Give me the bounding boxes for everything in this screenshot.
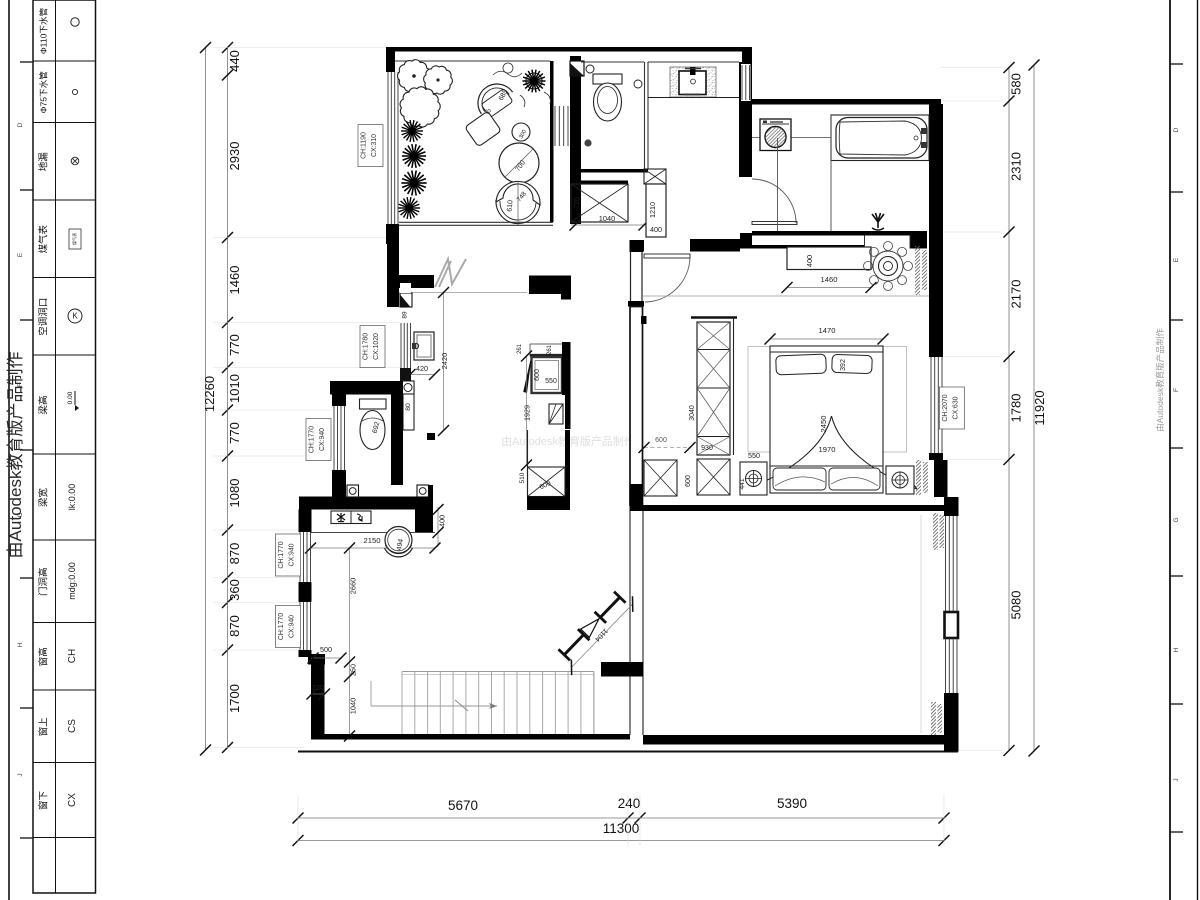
svg-text:梁宽: 梁宽 bbox=[38, 488, 50, 508]
svg-text:440: 440 bbox=[227, 50, 242, 72]
svg-text:由Autodesk教育版产品制作: 由Autodesk教育版产品制作 bbox=[6, 352, 25, 559]
svg-text:11920: 11920 bbox=[1032, 390, 1047, 425]
svg-text:240: 240 bbox=[618, 796, 641, 811]
svg-text:空调洞口: 空调洞口 bbox=[38, 298, 50, 336]
svg-text:770: 770 bbox=[227, 334, 242, 356]
svg-text:400: 400 bbox=[805, 255, 814, 267]
svg-text:CX:940: CX:940 bbox=[319, 428, 326, 451]
svg-text:梁高: 梁高 bbox=[38, 395, 50, 414]
svg-text:J: J bbox=[1173, 778, 1180, 781]
svg-text:1040: 1040 bbox=[349, 698, 358, 714]
svg-text:H: H bbox=[17, 642, 24, 647]
svg-text:E: E bbox=[17, 252, 24, 257]
svg-text:720: 720 bbox=[574, 197, 581, 209]
svg-text:K: K bbox=[72, 312, 78, 321]
svg-text:2150: 2150 bbox=[364, 536, 381, 545]
svg-text:5670: 5670 bbox=[448, 798, 478, 813]
svg-text:CX:310: CX:310 bbox=[371, 134, 378, 157]
svg-text:CH:1190: CH:1190 bbox=[361, 132, 368, 159]
svg-text:CX: CX bbox=[67, 793, 78, 807]
svg-text:870: 870 bbox=[227, 615, 242, 637]
svg-text:2450: 2450 bbox=[819, 416, 828, 433]
svg-text:H: H bbox=[1173, 647, 1180, 652]
svg-text:12260: 12260 bbox=[202, 376, 217, 412]
svg-text:1080: 1080 bbox=[227, 479, 242, 508]
svg-text:441: 441 bbox=[739, 478, 746, 489]
svg-text:1470: 1470 bbox=[819, 326, 836, 335]
svg-text:392: 392 bbox=[840, 359, 847, 371]
svg-text:360: 360 bbox=[227, 579, 242, 601]
svg-text:1929: 1929 bbox=[523, 405, 532, 421]
svg-text:mdg:0.00: mdg:0.00 bbox=[67, 562, 77, 600]
svg-text:窗高: 窗高 bbox=[38, 647, 50, 666]
svg-text:2310: 2310 bbox=[1009, 152, 1024, 181]
svg-text:770: 770 bbox=[227, 422, 242, 444]
svg-text:Φ110下水管: Φ110下水管 bbox=[38, 7, 49, 54]
svg-text:420: 420 bbox=[416, 364, 428, 373]
svg-text:5390: 5390 bbox=[777, 796, 807, 811]
svg-text:CH:1770: CH:1770 bbox=[278, 613, 285, 640]
svg-text:地漏: 地漏 bbox=[38, 152, 50, 171]
svg-text:2930: 2930 bbox=[227, 142, 242, 171]
svg-text:煤气表: 煤气表 bbox=[71, 232, 78, 245]
svg-text:250: 250 bbox=[349, 664, 358, 676]
svg-text:CH: CH bbox=[67, 649, 78, 663]
svg-text:门洞高: 门洞高 bbox=[38, 567, 50, 596]
svg-text:80: 80 bbox=[405, 403, 412, 411]
svg-text:1460: 1460 bbox=[227, 266, 242, 295]
svg-text:煤气表: 煤气表 bbox=[38, 225, 50, 254]
svg-text:870: 870 bbox=[227, 543, 242, 565]
svg-text:1040: 1040 bbox=[599, 214, 615, 223]
svg-text:CH:2070: CH:2070 bbox=[942, 394, 949, 421]
svg-text:261: 261 bbox=[517, 343, 523, 354]
svg-text:lk:0.00: lk:0.00 bbox=[67, 484, 77, 511]
svg-text:400: 400 bbox=[650, 225, 662, 234]
svg-text:CH:1770: CH:1770 bbox=[278, 541, 285, 568]
svg-text:CX:630: CX:630 bbox=[953, 396, 960, 419]
svg-text:2420: 2420 bbox=[440, 353, 449, 369]
svg-text:窗下: 窗下 bbox=[38, 791, 50, 810]
svg-text:G: G bbox=[1173, 517, 1180, 522]
svg-text:D: D bbox=[1173, 127, 1180, 132]
svg-text:F: F bbox=[1173, 388, 1180, 392]
svg-text:1970: 1970 bbox=[819, 445, 836, 454]
svg-text:E: E bbox=[1173, 257, 1180, 262]
svg-text:261: 261 bbox=[547, 344, 553, 355]
svg-text:610: 610 bbox=[507, 200, 515, 212]
svg-text:510: 510 bbox=[519, 472, 526, 483]
svg-text:400: 400 bbox=[438, 515, 447, 527]
svg-text:3040: 3040 bbox=[689, 405, 696, 421]
svg-text:1700: 1700 bbox=[227, 684, 242, 713]
svg-text:Φ75下水管: Φ75下水管 bbox=[38, 71, 49, 114]
svg-text:600: 600 bbox=[685, 475, 692, 487]
svg-text:580: 580 bbox=[1009, 73, 1024, 95]
svg-text:600: 600 bbox=[655, 437, 667, 444]
svg-text:窗上: 窗上 bbox=[38, 717, 50, 737]
svg-text:0.00: 0.00 bbox=[67, 391, 74, 404]
svg-text:89: 89 bbox=[402, 311, 409, 319]
svg-text:CX:940: CX:940 bbox=[289, 615, 296, 638]
svg-text:1010: 1010 bbox=[227, 374, 242, 403]
svg-text:1210: 1210 bbox=[648, 202, 657, 218]
svg-text:550: 550 bbox=[545, 378, 557, 385]
svg-text:CX:940: CX:940 bbox=[289, 543, 296, 566]
svg-text:550: 550 bbox=[748, 451, 760, 460]
svg-text:D: D bbox=[17, 122, 24, 127]
svg-text:CX:1020: CX:1020 bbox=[373, 333, 380, 360]
svg-text:CH:1780: CH:1780 bbox=[363, 333, 370, 360]
svg-text:2170: 2170 bbox=[1009, 280, 1024, 309]
svg-text:600: 600 bbox=[534, 369, 541, 381]
svg-text:230: 230 bbox=[312, 685, 324, 692]
svg-text:930: 930 bbox=[701, 445, 713, 452]
svg-text:5080: 5080 bbox=[1009, 591, 1024, 620]
svg-text:1460: 1460 bbox=[821, 275, 838, 284]
svg-text:由Autodesk教育版产品制作: 由Autodesk教育版产品制作 bbox=[1155, 328, 1165, 432]
svg-text:1780: 1780 bbox=[1009, 394, 1024, 423]
svg-text:2660: 2660 bbox=[349, 578, 358, 594]
svg-text:J: J bbox=[17, 773, 24, 776]
svg-text:CS: CS bbox=[67, 719, 78, 733]
svg-text:CH:1770: CH:1770 bbox=[309, 426, 316, 453]
svg-text:11300: 11300 bbox=[603, 821, 640, 836]
svg-text:500: 500 bbox=[320, 645, 332, 654]
